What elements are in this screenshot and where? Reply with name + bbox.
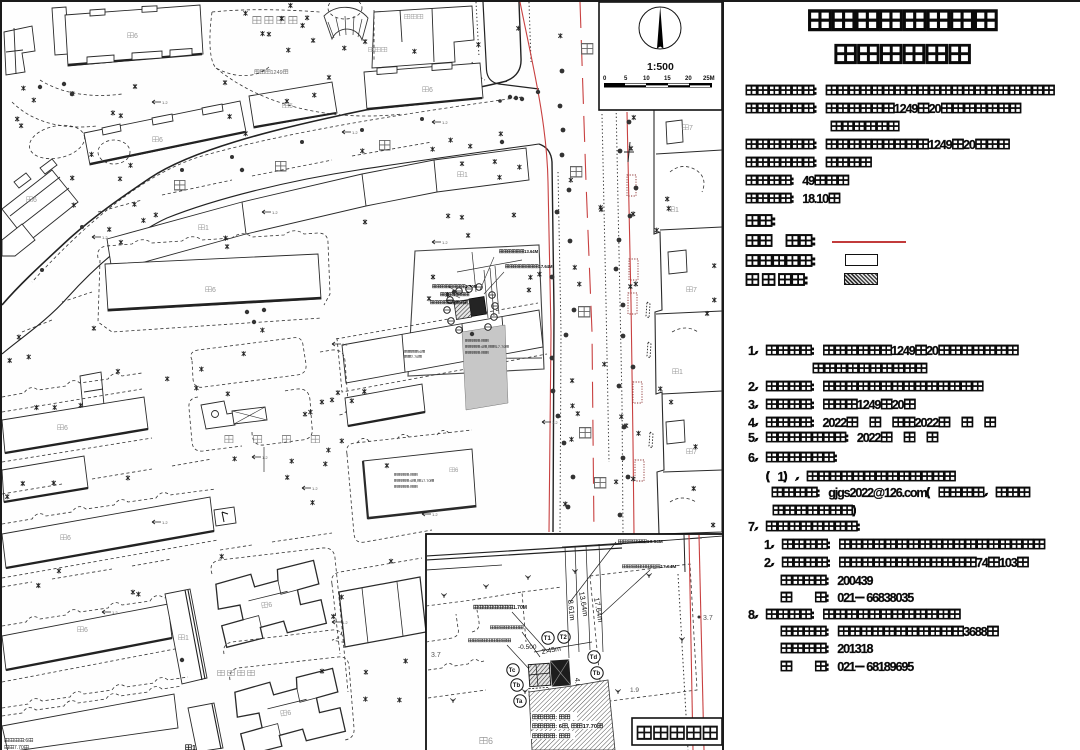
svg-text:混6: 混6 (60, 534, 71, 541)
svg-text:路: 路 (578, 426, 592, 440)
svg-text:混7: 混7 (686, 286, 697, 293)
svg-text:3.7: 3.7 (703, 614, 713, 621)
svg-text:T2: T2 (560, 634, 568, 640)
svg-text:岭美聚庭: 岭美聚庭 (252, 16, 300, 26)
svg-text:1.2: 1.2 (342, 621, 348, 625)
svg-text:高度7.70米: 高度7.70米 (404, 355, 422, 359)
svg-text:1.2: 1.2 (272, 211, 278, 215)
svg-text:混6: 混6 (127, 32, 138, 39)
svg-text:停车场: 停车场 (404, 13, 424, 20)
svg-text:混6: 混6 (152, 136, 163, 143)
svg-text:混7: 混7 (682, 124, 693, 131)
svg-text:10: 10 (643, 75, 650, 81)
svg-text:1.2: 1.2 (342, 343, 348, 347)
svg-text:混1: 混1 (672, 368, 683, 375)
svg-text:混1: 混1 (178, 634, 189, 641)
svg-text:混1: 混1 (457, 171, 468, 178)
svg-text:1.2: 1.2 (162, 521, 168, 525)
svg-text:1.2: 1.2 (442, 241, 448, 245)
svg-text:1.9: 1.9 (630, 686, 639, 693)
svg-text:共 和 八 村: 共 和 八 村 (224, 435, 328, 445)
svg-text:新增无障碍坡道: 新增无障碍坡道 (489, 624, 524, 630)
svg-text:加装后楼距为13.64M: 加装后楼距为13.64M (499, 249, 539, 254)
svg-text:共和八村: 共和八村 (217, 669, 257, 677)
svg-text:15: 15 (664, 75, 671, 81)
svg-text:Tb: Tb (593, 670, 601, 676)
svg-text:20: 20 (685, 75, 692, 81)
svg-text:1.2: 1.2 (112, 611, 118, 615)
svg-text:混5: 混5 (282, 102, 293, 109)
svg-text:新增电梯基底标高1.70M: 新增电梯基底标高1.70M (472, 604, 527, 610)
svg-text:建筑层数:6层,高度17.70米: 建筑层数:6层,高度17.70米 (465, 345, 509, 349)
svg-text:建筑层数:6层,高17.70米: 建筑层数:6层,高17.70米 (394, 479, 435, 483)
svg-text:岭南路1249弄: 岭南路1249弄 (254, 69, 288, 75)
svg-text:岭: 岭 (593, 476, 607, 490)
svg-text:混6: 混6 (26, 196, 37, 203)
svg-text:停车场: 停车场 (368, 46, 388, 53)
svg-text:混1: 混1 (184, 744, 196, 750)
svg-text:混6: 混6 (57, 424, 68, 431)
svg-text:混6: 混6 (422, 86, 433, 93)
svg-text:此处为拆除绿化区域: 此处为拆除绿化区域 (467, 637, 511, 643)
svg-text:路: 路 (580, 42, 594, 56)
svg-text:Tb: Tb (513, 682, 521, 688)
svg-text:此处为拆除绿化区域: 此处为拆除绿化区域 (430, 300, 469, 305)
svg-text:南: 南 (577, 305, 591, 319)
svg-text:通: 通 (173, 179, 186, 192)
svg-text:高度7.70米: 高度7.70米 (4, 745, 29, 750)
svg-text:最大梯数:二梯: 最大梯数:二梯 (394, 485, 418, 489)
svg-text:局部放大图: 局部放大图 (636, 724, 719, 741)
svg-text:Td: Td (590, 654, 598, 660)
svg-text:加楼后楼距为13.64M: 加楼后楼距为13.64M (617, 538, 663, 544)
svg-text:混6: 混6 (449, 467, 459, 473)
svg-text:1.2: 1.2 (552, 421, 558, 425)
svg-text:建筑层数: 6层, 高度17.70米: 建筑层数: 6层, 高度17.70米 (531, 722, 603, 729)
svg-text:1:500: 1:500 (647, 62, 674, 72)
svg-text:建筑层数:6层: 建筑层数:6层 (404, 350, 425, 354)
svg-text:混1: 混1 (198, 224, 209, 231)
svg-text:1.2: 1.2 (432, 513, 438, 517)
svg-text:建筑类别:住宅: 建筑类别:住宅 (394, 473, 418, 477)
svg-text:新增电梯基底标高1.70M: 新增电梯基底标高1.70M (432, 284, 478, 289)
svg-text:Tc: Tc (509, 667, 516, 673)
svg-text:路: 路 (378, 139, 391, 152)
svg-text:-0.500: -0.500 (518, 643, 537, 650)
svg-text:加楼前原始楼距为17.64M: 加楼前原始楼距为17.64M (621, 563, 676, 569)
svg-text:混6: 混6 (205, 286, 216, 293)
svg-text:1.2: 1.2 (442, 121, 448, 125)
svg-text:1.2: 1.2 (102, 236, 108, 240)
svg-text:混6: 混6 (479, 737, 493, 746)
svg-text:Ta: Ta (516, 698, 523, 704)
svg-text:25M: 25M (703, 75, 715, 81)
svg-text:建筑类别:住宅: 建筑类别:住宅 (465, 339, 489, 343)
svg-text:1.2: 1.2 (262, 456, 268, 460)
svg-text:混6: 混6 (77, 626, 88, 633)
svg-text:1.2: 1.2 (162, 101, 168, 105)
svg-text:岭: 岭 (569, 165, 583, 179)
svg-text:1.2: 1.2 (352, 131, 358, 135)
svg-text:T1: T1 (544, 635, 552, 641)
svg-text:加装前原始楼距为17.64M: 加装前原始楼距为17.64M (505, 264, 553, 269)
svg-text:1.2: 1.2 (312, 487, 318, 491)
svg-text:结构类别:二梯: 结构类别:二梯 (465, 351, 489, 355)
svg-text:建筑类别: 住宅: 建筑类别: 住宅 (531, 713, 571, 720)
svg-text:3.7: 3.7 (431, 651, 441, 658)
svg-text:最大梯数: 二梯: 最大梯数: 二梯 (531, 732, 571, 739)
svg-text:建筑层数:6层: 建筑层数:6层 (4, 738, 33, 743)
